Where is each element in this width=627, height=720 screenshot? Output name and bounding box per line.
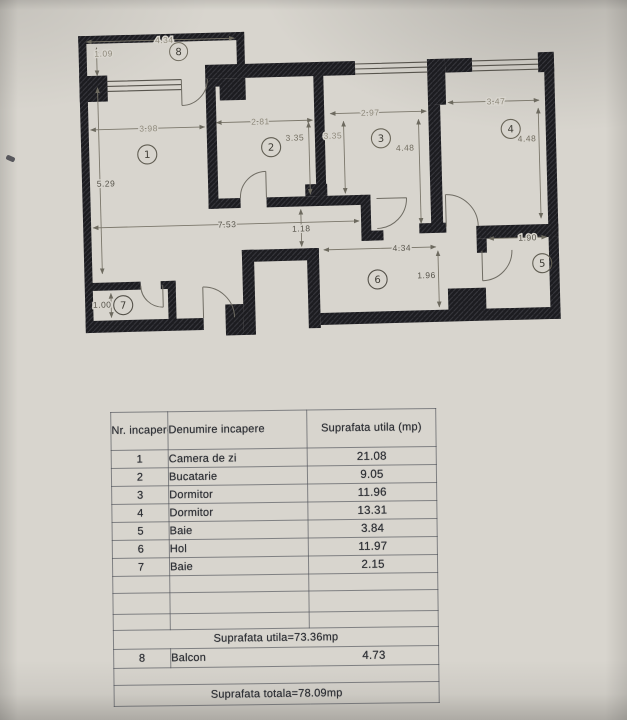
cell-area: 13.31 (308, 500, 437, 520)
room-number-5: 5 (533, 253, 552, 272)
cell-name: Camera de zi (168, 448, 307, 468)
floor-plan: 4.34 1.09 3.98 5.29 2.81 3.35 3.35 2.97 … (0, 0, 627, 408)
svg-text:8: 8 (175, 47, 182, 58)
svg-text:7: 7 (120, 301, 127, 312)
dim-label: 3.47 (487, 96, 506, 106)
cell-name: Baie (169, 556, 308, 576)
dim-label: 4.48 (518, 133, 537, 143)
dim-label: 4.34 (155, 35, 174, 45)
walls (78, 24, 561, 339)
dim-label: 1.90 (518, 232, 537, 242)
dim-label: 1.96 (417, 270, 436, 280)
dim-label: 2.81 (251, 116, 270, 126)
col-header-nr: Nr. incapere (111, 412, 168, 451)
cell-area: 3.84 (308, 518, 437, 538)
col-header-area: Suprafata utila (mp) (307, 408, 436, 448)
svg-text:3: 3 (378, 134, 385, 145)
dim-label: 1.09 (94, 48, 113, 58)
svg-text:6: 6 (374, 275, 381, 286)
dim-label: 3.35 (323, 130, 342, 140)
dim-label: 3.35 (285, 132, 304, 142)
total-row: Suprafata totala=78.09mp (114, 681, 439, 706)
area-table: Nr. incapere Denumire incapere Suprafata… (110, 408, 438, 707)
total-label: Suprafata totala=78.09mp (114, 681, 439, 706)
dim-label: 4.34 (392, 243, 411, 253)
cell-name: Bucatarie (168, 466, 307, 486)
svg-text:5: 5 (539, 259, 546, 270)
dim-label: 1.00 (93, 299, 112, 309)
cell-nr: 7 (112, 558, 169, 577)
col-header-name: Denumire incapere (168, 410, 307, 450)
dim-label: 7.53 (218, 219, 237, 229)
dim-label: 1.18 (292, 223, 311, 233)
dim-label: 2.97 (361, 107, 380, 117)
cell-nr: 5 (112, 522, 169, 541)
dim-label: 4.48 (396, 142, 415, 152)
room-number-7: 7 (113, 295, 132, 314)
cell-area: 4.73 (310, 645, 439, 666)
room-number-4: 4 (501, 119, 520, 138)
svg-text:2: 2 (268, 143, 275, 154)
floor-plan-drawing: 4.34 1.09 3.98 5.29 2.81 3.35 3.35 2.97 … (0, 0, 627, 408)
cell-name: Hol (169, 538, 308, 558)
room-number-8: 8 (169, 42, 187, 60)
table-header-row: Nr. incapere Denumire incapere Suprafata… (111, 408, 436, 450)
cell-area: 21.08 (307, 446, 436, 466)
cell-nr: 2 (111, 468, 168, 487)
room-number-1: 1 (138, 145, 157, 164)
cell-area: 11.97 (308, 536, 437, 556)
cell-area: 2.15 (308, 554, 437, 574)
room-number-6: 6 (368, 270, 387, 289)
cell-nr: 4 (112, 504, 169, 523)
cell-area: 11.96 (308, 482, 437, 502)
cell-name: Baie (169, 520, 308, 540)
cell-area: 9.05 (307, 464, 436, 484)
cell-nr: 3 (112, 486, 169, 505)
svg-text:4: 4 (507, 124, 514, 135)
scanned-floorplan-photo: { "floorplan": { "room_numbers": ["1","2… (0, 0, 627, 720)
svg-text:1: 1 (144, 150, 151, 161)
cell-name: Balcon (171, 647, 310, 668)
room-number-3: 3 (371, 129, 390, 148)
room-number-2: 2 (261, 137, 280, 156)
dim-label: 5.29 (97, 178, 116, 188)
cell-nr: 6 (112, 540, 169, 559)
cell-name: Dormitor (169, 502, 308, 522)
dim-label: 3.98 (139, 123, 158, 133)
cell-nr: 1 (111, 450, 168, 469)
cell-nr: 8 (114, 649, 171, 669)
cell-name: Dormitor (169, 484, 308, 504)
